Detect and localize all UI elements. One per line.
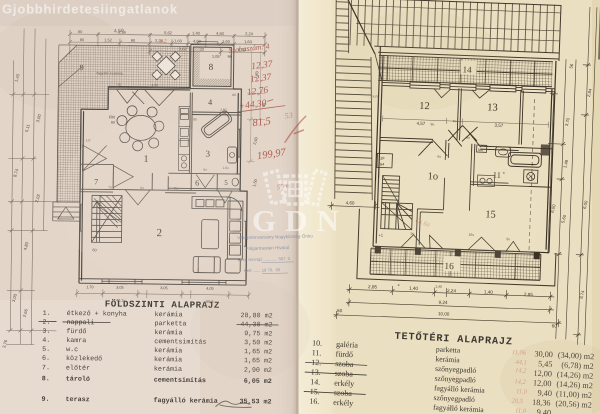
svg-text:10.: 10.	[312, 338, 322, 347]
svg-text:kerámia: kerámia	[155, 311, 183, 319]
svg-text:2,24: 2,24	[245, 31, 254, 36]
svg-text:4,60: 4,60	[216, 31, 225, 36]
svg-text:4,2: 4,2	[449, 404, 458, 411]
svg-text:9o: 9o	[466, 136, 470, 140]
svg-text:3,05: 3,05	[116, 286, 123, 290]
svg-text:m2: m2	[263, 398, 271, 406]
svg-text:35,53: 35,53	[239, 398, 259, 406]
svg-text:kerámia: kerámia	[154, 366, 182, 374]
svg-text:1,40: 1,40	[192, 31, 201, 36]
svg-text:5.: 5.	[42, 346, 50, 354]
svg-text:tároló: tároló	[66, 375, 90, 383]
svg-text:90: 90	[111, 121, 115, 125]
svg-text:4o: 4o	[453, 119, 457, 123]
svg-text:4.: 4.	[42, 337, 50, 345]
svg-text:erkély: erkély	[333, 398, 353, 408]
svg-text:2,60: 2,60	[220, 108, 227, 112]
svg-text:1,40: 1,40	[484, 289, 494, 294]
svg-text:64: 64	[380, 162, 384, 166]
svg-text:előtér: előtér	[66, 364, 90, 372]
svg-text:GDN: GDN	[252, 203, 348, 238]
svg-text:3.: 3.	[42, 328, 50, 336]
svg-text:9.: 9.	[42, 396, 50, 404]
svg-text:3,57: 3,57	[494, 123, 503, 128]
svg-text:14.: 14.	[310, 377, 320, 386]
svg-text:10,00: 10,00	[438, 311, 450, 316]
svg-text:60: 60	[232, 93, 236, 97]
svg-text:parketta: parketta	[436, 345, 461, 355]
svg-text:2,85: 2,85	[368, 284, 378, 289]
svg-text:5,62: 5,62	[164, 30, 173, 35]
svg-text:nappali: nappali	[66, 319, 94, 327]
svg-text:4,05: 4,05	[206, 287, 213, 291]
svg-text:kamra: kamra	[66, 337, 86, 345]
svg-text:1,60: 1,60	[174, 38, 183, 43]
svg-text:13: 13	[487, 102, 498, 113]
svg-text:9,24: 9,24	[438, 300, 448, 305]
svg-text:4,6: 4,6	[450, 375, 459, 382]
svg-text:1,60: 1,60	[222, 39, 231, 44]
svg-text:6.: 6.	[42, 355, 50, 363]
svg-text:2,85: 2,85	[524, 292, 534, 297]
svg-text:Mo: Mo	[478, 148, 483, 152]
svg-text:8,2: 8,2	[160, 39, 168, 46]
svg-text:kerámia: kerámia	[154, 347, 182, 355]
svg-text:fürdő: fürdő	[335, 349, 353, 359]
svg-text:fürdő: fürdő	[66, 328, 86, 336]
svg-text:4: 4	[208, 98, 212, 107]
svg-text:1,50: 1,50	[151, 83, 158, 87]
svg-text:60: 60	[337, 308, 343, 313]
svg-text:53: 53	[284, 111, 293, 121]
svg-text:fagyálló kerámia: fagyálló kerámia	[153, 397, 217, 406]
svg-text:81,5: 81,5	[252, 116, 272, 129]
svg-text:kerámia: kerámia	[154, 356, 182, 364]
svg-text:Kelt: ...... 19 70. 06: Kelt: ...... 19 70. 06	[244, 267, 281, 273]
svg-text:közlekedő: közlekedő	[66, 355, 102, 363]
svg-text:étkező + konyha: étkező + konyha	[67, 310, 127, 319]
svg-text:7.: 7.	[42, 364, 50, 372]
svg-text:kerámia: kerámia	[154, 329, 182, 337]
svg-text:Polgármesteri Hivatal: Polgármesteri Hivatal	[245, 245, 289, 251]
svg-text:8.: 8.	[42, 375, 50, 383]
svg-text:FM: FM	[109, 114, 115, 119]
svg-text:1,40: 1,40	[409, 286, 419, 291]
svg-text:90: 90	[193, 118, 197, 122]
svg-text:cementsimítás: cementsimítás	[154, 377, 206, 386]
svg-text:1,70: 1,70	[86, 285, 93, 289]
svg-text:1,05: 1,05	[212, 54, 221, 59]
svg-text:16.: 16.	[309, 397, 319, 406]
svg-text:kerámia: kerámia	[435, 354, 460, 364]
svg-text:w.c: w.c	[66, 346, 78, 354]
svg-text:2.: 2.	[42, 319, 50, 327]
svg-text:1.: 1.	[43, 310, 51, 318]
svg-text:terasz: terasz	[66, 396, 90, 404]
svg-text:8: 8	[209, 62, 214, 72]
svg-text:erkély: erkély	[334, 378, 354, 388]
svg-text:Gjobbhirdetesiingatlanok: Gjobbhirdetesiingatlanok	[2, 2, 178, 17]
svg-text:parketta: parketta	[154, 320, 186, 328]
svg-text:11.: 11.	[311, 348, 321, 357]
svg-text:m2: m2	[264, 378, 272, 386]
svg-text:4: 4	[398, 283, 400, 287]
svg-text:9o: 9o	[430, 122, 434, 126]
svg-text:4,60: 4,60	[193, 39, 202, 44]
svg-text:galéria: galéria	[336, 340, 359, 350]
svg-text:4,57: 4,57	[416, 121, 425, 126]
svg-text:3,05: 3,05	[160, 286, 167, 290]
